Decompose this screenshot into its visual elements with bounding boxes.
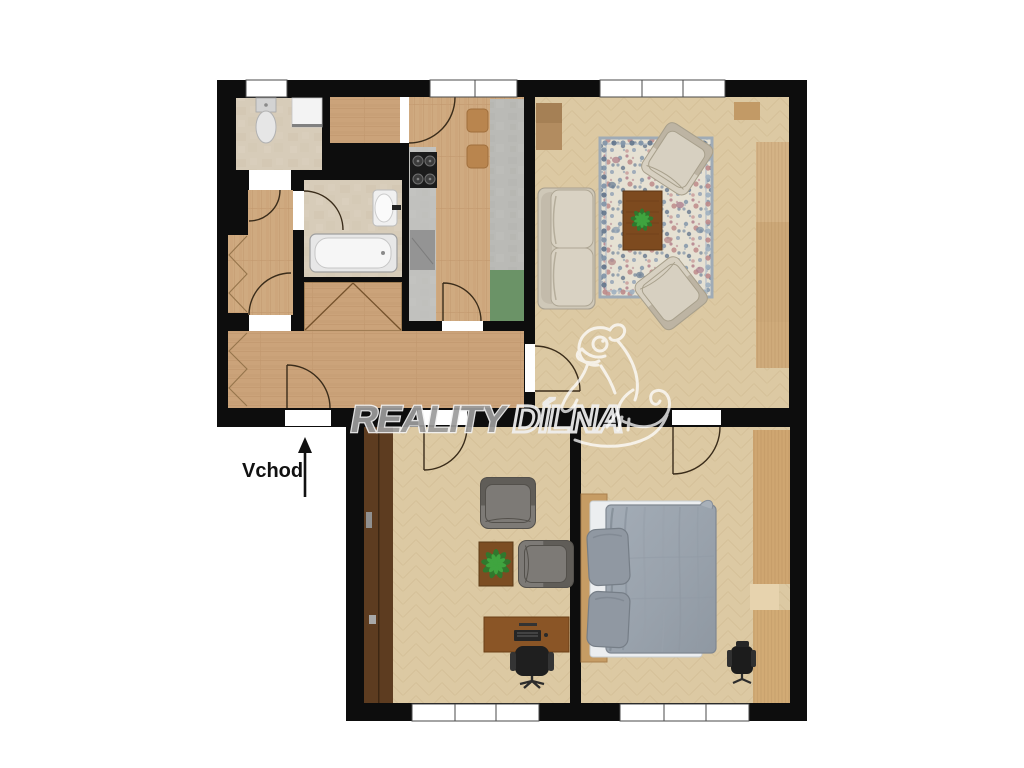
svg-text:Vchod: Vchod bbox=[242, 460, 303, 482]
svg-text:REALITY: REALITY bbox=[347, 398, 509, 441]
svg-text:DÍLNA: DÍLNA bbox=[509, 397, 627, 441]
